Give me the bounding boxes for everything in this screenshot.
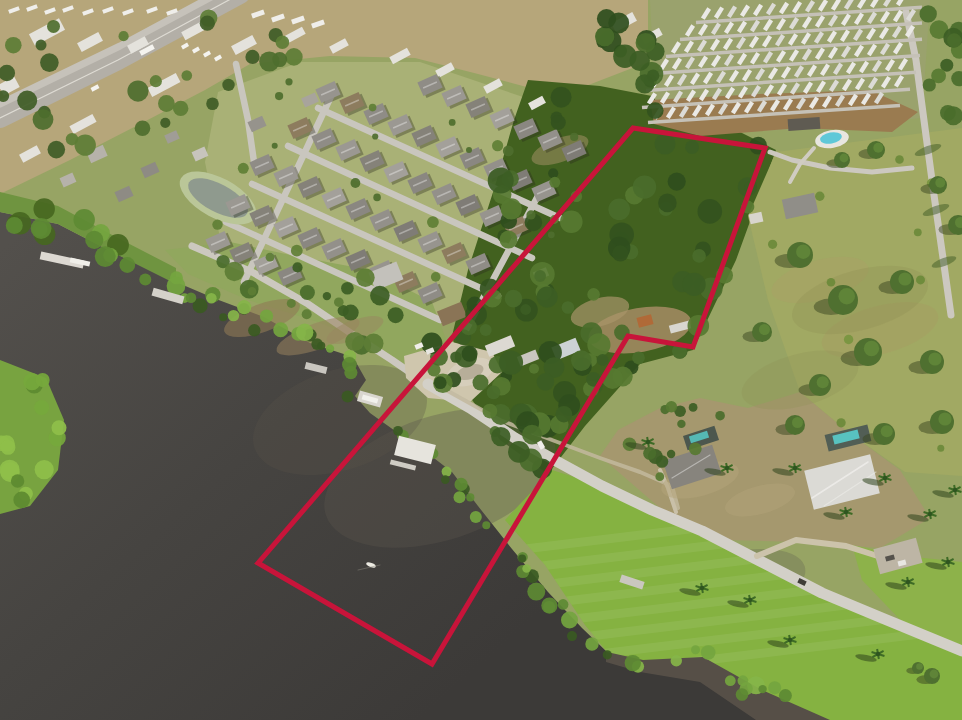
aerial-photo: [0, 0, 962, 720]
aerial-photo-view: [0, 0, 962, 720]
park-clubhouse: [788, 117, 821, 131]
